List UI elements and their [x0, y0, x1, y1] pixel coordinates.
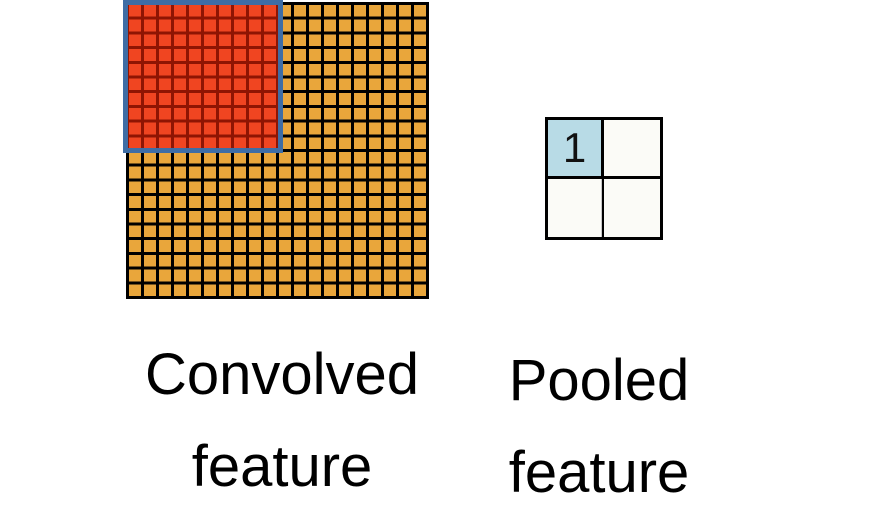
convolved-feature-label-line1: Convolved	[110, 329, 454, 421]
convolved-feature-label: Convolved feature	[110, 329, 454, 512]
pooled-feature-grid: 1	[545, 117, 663, 240]
pooled-feature-label-line2: feature	[449, 427, 749, 512]
pooled-cell-top-right	[604, 120, 660, 179]
convolved-feature-label-line2: feature	[110, 421, 454, 512]
pooled-cell-bottom-right	[604, 179, 660, 238]
pooled-cell-bottom-left	[548, 179, 604, 238]
pooling-window-frame	[123, 0, 283, 153]
pooled-feature-label-line1: Pooled	[449, 335, 749, 427]
cnn-pooling-diagram: 1 Convolved feature Pooled feature	[0, 0, 888, 512]
pooled-feature-label: Pooled feature	[449, 335, 749, 512]
pooled-cell-top-left: 1	[548, 120, 604, 179]
